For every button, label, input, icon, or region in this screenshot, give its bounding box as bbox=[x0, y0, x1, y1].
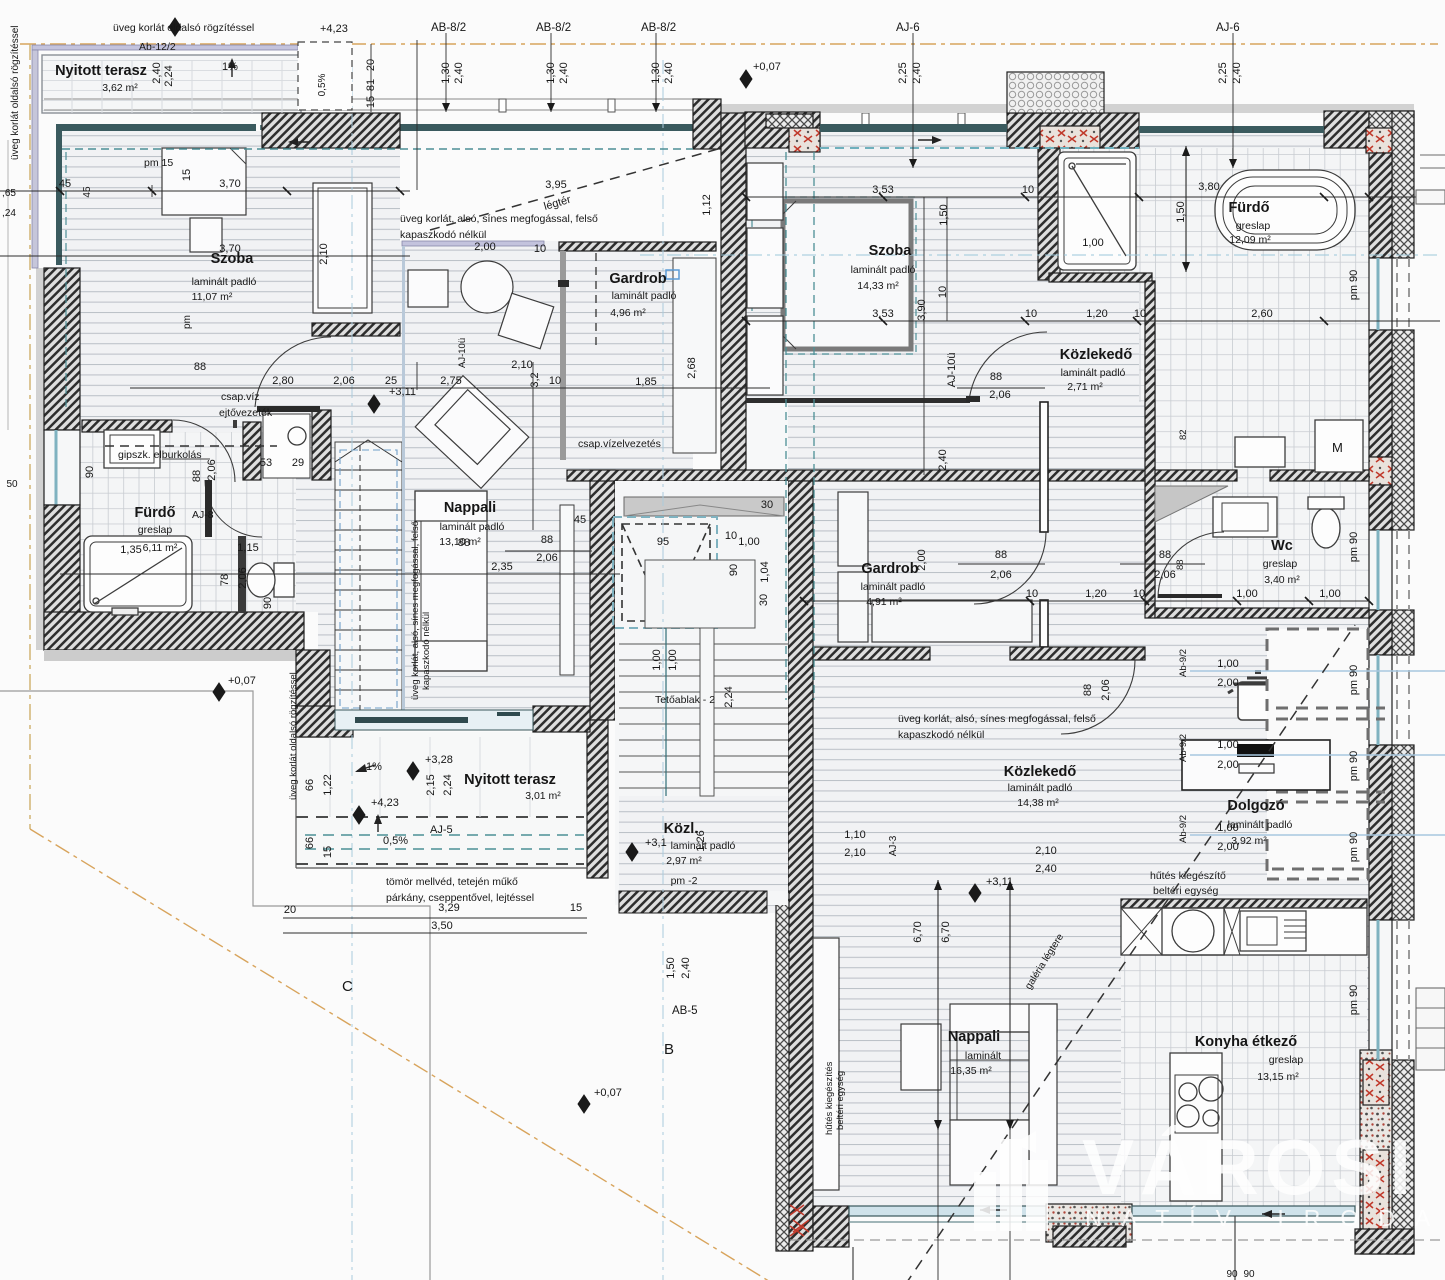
svg-text:AB-8/2: AB-8/2 bbox=[641, 22, 676, 34]
svg-text:2,24: 2,24 bbox=[723, 686, 735, 707]
svg-text:pm -2: pm -2 bbox=[671, 875, 698, 887]
svg-text:2,00: 2,00 bbox=[1217, 759, 1238, 771]
svg-text:Konyha étkező: Konyha étkező bbox=[1195, 1034, 1297, 1050]
svg-text:AJ-3: AJ-3 bbox=[888, 835, 899, 856]
svg-text:88: 88 bbox=[458, 537, 470, 549]
svg-text:Wc: Wc bbox=[1271, 538, 1293, 554]
svg-text:2,71 m²: 2,71 m² bbox=[1067, 381, 1103, 393]
svg-text:üveg korlát, alsó, sínes megfo: üveg korlát, alsó, sínes megfogással, fe… bbox=[898, 713, 1096, 725]
svg-text:Ab-9/2: Ab-9/2 bbox=[1178, 815, 1189, 843]
svg-text:2,24: 2,24 bbox=[442, 774, 454, 795]
svg-text:3,62 m²: 3,62 m² bbox=[102, 82, 138, 94]
svg-text:Közl.: Közl. bbox=[664, 821, 699, 837]
svg-text:pm 90: pm 90 bbox=[1348, 832, 1360, 863]
svg-text:Nappali: Nappali bbox=[948, 1029, 1000, 1045]
svg-text:2,00: 2,00 bbox=[916, 549, 928, 570]
svg-text:1,00: 1,00 bbox=[667, 649, 679, 670]
svg-text:2,06: 2,06 bbox=[990, 569, 1011, 581]
svg-text:tömör mellvéd, tetején műkő: tömör mellvéd, tetején műkő bbox=[386, 876, 518, 888]
svg-text:2,40: 2,40 bbox=[680, 957, 692, 978]
svg-text:kapaszkodó nélkül: kapaszkodó nélkül bbox=[898, 729, 984, 741]
svg-text:1%: 1% bbox=[366, 761, 382, 773]
svg-text:2,00: 2,00 bbox=[1217, 677, 1238, 689]
svg-text:78: 78 bbox=[219, 574, 231, 586]
svg-text:beltéri egység: beltéri egység bbox=[835, 1071, 846, 1130]
svg-text:10: 10 bbox=[725, 530, 737, 542]
svg-text:AJ-6: AJ-6 bbox=[896, 22, 920, 34]
svg-text:+3,1: +3,1 bbox=[645, 837, 667, 849]
svg-text:Dolgozó: Dolgozó bbox=[1227, 798, 1284, 814]
svg-text:2,24: 2,24 bbox=[163, 65, 175, 86]
svg-text:88: 88 bbox=[1175, 559, 1186, 570]
svg-text:3,29: 3,29 bbox=[438, 902, 459, 914]
svg-text:Közlekedő: Közlekedő bbox=[1004, 764, 1077, 780]
svg-text:AB-8/2: AB-8/2 bbox=[431, 22, 466, 34]
svg-text:45: 45 bbox=[59, 178, 71, 190]
svg-text:1,00: 1,00 bbox=[1217, 739, 1238, 751]
svg-text:AB-5: AB-5 bbox=[672, 1005, 698, 1017]
svg-text:ejtővezeték: ejtővezeték bbox=[219, 407, 273, 419]
svg-text:2,40: 2,40 bbox=[558, 62, 570, 83]
svg-text:30: 30 bbox=[761, 499, 773, 511]
svg-text:1,50: 1,50 bbox=[1175, 201, 1187, 222]
svg-text:88: 88 bbox=[541, 534, 553, 546]
svg-text:15: 15 bbox=[181, 169, 193, 181]
svg-text:laminált padló: laminált padló bbox=[1061, 367, 1126, 379]
svg-text:88: 88 bbox=[191, 470, 203, 482]
svg-text:1,00: 1,00 bbox=[738, 536, 759, 548]
svg-text:10: 10 bbox=[534, 243, 546, 255]
svg-text:20: 20 bbox=[284, 904, 296, 916]
svg-text:2,40: 2,40 bbox=[453, 62, 465, 83]
svg-text:1,00: 1,00 bbox=[1217, 822, 1238, 834]
svg-text:pm 90: pm 90 bbox=[1348, 270, 1360, 301]
svg-text:1,30: 1,30 bbox=[545, 62, 557, 83]
svg-text:1,50: 1,50 bbox=[665, 957, 677, 978]
svg-text:2,97 m²: 2,97 m² bbox=[666, 855, 702, 867]
svg-text:laminált padló: laminált padló bbox=[1008, 782, 1073, 794]
svg-text:1,85: 1,85 bbox=[635, 376, 656, 388]
svg-text:Közlekedő: Közlekedő bbox=[1060, 347, 1133, 363]
svg-text:2,06: 2,06 bbox=[1100, 679, 1112, 700]
svg-text:beltéri egység: beltéri egység bbox=[1153, 885, 1219, 897]
svg-text:2,06: 2,06 bbox=[536, 552, 557, 564]
svg-text:2,68: 2,68 bbox=[686, 357, 698, 378]
svg-text:90: 90 bbox=[1243, 1269, 1255, 1280]
svg-text:üveg korlát oldalsó rögzítésse: üveg korlát oldalsó rögzítéssel bbox=[288, 672, 299, 800]
svg-text:greslap: greslap bbox=[1269, 1054, 1304, 1066]
svg-text:hűtés kiegészítő: hűtés kiegészítő bbox=[1150, 870, 1226, 882]
svg-text:+0,07: +0,07 bbox=[753, 61, 781, 73]
svg-text:90: 90 bbox=[262, 597, 274, 609]
svg-text:6,70: 6,70 bbox=[912, 921, 924, 942]
svg-text:16,35 m²: 16,35 m² bbox=[950, 1065, 992, 1077]
svg-text:1,00: 1,00 bbox=[1082, 237, 1103, 249]
svg-text:AJ-10ü: AJ-10ü bbox=[457, 338, 468, 368]
svg-text:B: B bbox=[664, 1041, 674, 1058]
svg-text:hűtés kiegészítés: hűtés kiegészítés bbox=[824, 1061, 835, 1135]
svg-text:45: 45 bbox=[82, 186, 93, 198]
svg-text:3,40 m²: 3,40 m² bbox=[1264, 574, 1300, 586]
svg-text:10: 10 bbox=[1134, 308, 1146, 320]
svg-text:82: 82 bbox=[1178, 429, 1189, 440]
svg-text:laminált padló: laminált padló bbox=[851, 264, 916, 276]
svg-text:88: 88 bbox=[990, 371, 1002, 383]
svg-text:laminált padló: laminált padló bbox=[861, 581, 926, 593]
svg-text:3,50: 3,50 bbox=[431, 920, 452, 932]
svg-text:6,11 m²: 6,11 m² bbox=[143, 542, 178, 554]
svg-text:1%: 1% bbox=[222, 61, 238, 73]
svg-text:2,40: 2,40 bbox=[151, 62, 163, 83]
svg-text:15: 15 bbox=[322, 846, 334, 858]
svg-text:greslap: greslap bbox=[138, 524, 173, 536]
svg-text:laminált padló: laminált padló bbox=[612, 290, 677, 302]
svg-text:pm: pm bbox=[182, 315, 193, 329]
svg-text:45: 45 bbox=[574, 514, 586, 526]
svg-text:88: 88 bbox=[1082, 684, 1094, 696]
svg-text:kapaszkodó nélkül: kapaszkodó nélkül bbox=[421, 612, 432, 690]
svg-text:üveg korlát oldalsó rögzítésse: üveg korlát oldalsó rögzítéssel bbox=[113, 22, 254, 34]
svg-text:greslap: greslap bbox=[1236, 220, 1271, 232]
svg-text:AB-8/2: AB-8/2 bbox=[536, 22, 571, 34]
svg-text:Gardrob: Gardrob bbox=[609, 271, 666, 287]
svg-text:+3,28: +3,28 bbox=[425, 754, 453, 766]
svg-text:20: 20 bbox=[365, 59, 377, 71]
svg-text:AJ-10ü: AJ-10ü bbox=[946, 353, 958, 388]
svg-text:2,40: 2,40 bbox=[663, 62, 675, 83]
svg-text:2,35: 2,35 bbox=[491, 561, 512, 573]
svg-text:0,5%: 0,5% bbox=[383, 835, 408, 847]
svg-text:2,10: 2,10 bbox=[1035, 845, 1056, 857]
svg-text:+4,23: +4,23 bbox=[371, 797, 399, 809]
svg-text:3,2: 3,2 bbox=[529, 372, 541, 387]
svg-text:3,70: 3,70 bbox=[219, 178, 240, 190]
svg-text:2,06: 2,06 bbox=[206, 459, 218, 480]
svg-text:15: 15 bbox=[365, 96, 377, 108]
svg-text:29: 29 bbox=[292, 457, 304, 469]
svg-text:üveg korlát, alsó, sínes megfo: üveg korlát, alsó, sínes megfogással, fe… bbox=[400, 213, 598, 225]
svg-text:1,30: 1,30 bbox=[440, 62, 452, 83]
svg-text:csap.víz: csap.víz bbox=[221, 391, 260, 403]
svg-text:AJ-8: AJ-8 bbox=[192, 509, 214, 521]
svg-text:Nyitott terasz: Nyitott terasz bbox=[55, 63, 147, 79]
svg-text:Gardrob: Gardrob bbox=[861, 561, 918, 577]
svg-text:10: 10 bbox=[549, 375, 561, 387]
svg-text:66: 66 bbox=[304, 837, 316, 849]
svg-text:Nyitott terasz: Nyitott terasz bbox=[464, 772, 556, 788]
svg-text:NATÍV IRODA: NATÍV IRODA bbox=[1085, 1205, 1445, 1231]
svg-text:Ab-9/2: Ab-9/2 bbox=[1178, 649, 1189, 677]
svg-text:3,53: 3,53 bbox=[872, 308, 893, 320]
svg-text:2,00: 2,00 bbox=[474, 241, 495, 253]
svg-text:2,75: 2,75 bbox=[440, 375, 461, 387]
svg-text:3,53: 3,53 bbox=[872, 184, 893, 196]
svg-text:0,5%: 0,5% bbox=[317, 73, 328, 96]
svg-text:10: 10 bbox=[1133, 588, 1145, 600]
svg-text:+3,11: +3,11 bbox=[389, 386, 416, 398]
svg-text:12,09 m²: 12,09 m² bbox=[1229, 234, 1271, 246]
svg-text:1,00: 1,00 bbox=[1236, 588, 1257, 600]
svg-text:2,25: 2,25 bbox=[897, 62, 909, 83]
svg-text:90: 90 bbox=[728, 564, 740, 576]
svg-text:+4,23: +4,23 bbox=[320, 23, 348, 35]
svg-text:30: 30 bbox=[758, 594, 770, 606]
svg-text:1,00: 1,00 bbox=[651, 649, 663, 670]
svg-text:11,07 m²: 11,07 m² bbox=[192, 291, 233, 303]
svg-text:2,10: 2,10 bbox=[844, 847, 865, 859]
svg-text:1,20: 1,20 bbox=[1086, 308, 1107, 320]
svg-text:90: 90 bbox=[84, 466, 96, 478]
svg-text:AJ-5: AJ-5 bbox=[430, 824, 453, 836]
svg-text:10: 10 bbox=[1026, 588, 1038, 600]
svg-text:3,01 m²: 3,01 m² bbox=[525, 790, 561, 802]
svg-text:laminált padló: laminált padló bbox=[192, 276, 257, 288]
svg-text:pm 90: pm 90 bbox=[1348, 532, 1360, 563]
svg-text:2,40: 2,40 bbox=[1035, 863, 1056, 875]
svg-text:2,06: 2,06 bbox=[333, 375, 354, 387]
svg-text:2,10: 2,10 bbox=[318, 243, 330, 264]
svg-text:pm 90: pm 90 bbox=[1348, 985, 1360, 1016]
svg-text:csap.vízelvezetés: csap.vízelvezetés bbox=[578, 438, 661, 450]
svg-text:50: 50 bbox=[6, 479, 18, 490]
svg-text:Tetőablak - 2: Tetőablak - 2 bbox=[655, 694, 715, 706]
svg-text:88: 88 bbox=[1159, 549, 1171, 561]
svg-text:10: 10 bbox=[937, 286, 949, 298]
svg-text:2,40: 2,40 bbox=[937, 449, 949, 470]
svg-text:13,15 m²: 13,15 m² bbox=[1257, 1071, 1299, 1083]
svg-text:95: 95 bbox=[657, 536, 669, 548]
svg-text:1,00: 1,00 bbox=[1217, 658, 1238, 670]
svg-text:laminált: laminált bbox=[965, 1050, 1001, 1062]
svg-text:88: 88 bbox=[194, 361, 206, 373]
svg-text:66: 66 bbox=[304, 779, 316, 791]
svg-text:4,96 m²: 4,96 m² bbox=[610, 307, 646, 319]
svg-text:2,60: 2,60 bbox=[1251, 308, 1272, 320]
svg-text:1,20: 1,20 bbox=[1085, 588, 1106, 600]
svg-text:6,70: 6,70 bbox=[940, 921, 952, 942]
svg-text:1,00: 1,00 bbox=[1319, 588, 1340, 600]
svg-text:1,35: 1,35 bbox=[120, 544, 141, 556]
svg-text:25: 25 bbox=[385, 375, 397, 387]
svg-text:2,40: 2,40 bbox=[1231, 62, 1243, 83]
svg-text:üveg korlát oldalsó rögzítésse: üveg korlát oldalsó rögzítéssel bbox=[10, 25, 21, 160]
svg-text:kapaszkodó nélkül: kapaszkodó nélkül bbox=[400, 229, 486, 241]
svg-text:10: 10 bbox=[1022, 184, 1034, 196]
svg-text:90: 90 bbox=[1226, 1269, 1238, 1280]
svg-text:Szoba: Szoba bbox=[869, 243, 913, 259]
svg-text:3,90: 3,90 bbox=[916, 299, 928, 320]
svg-text:Nappali: Nappali bbox=[444, 500, 496, 516]
svg-text:2,15: 2,15 bbox=[425, 774, 437, 795]
svg-text:Ab-9/2: Ab-9/2 bbox=[1178, 734, 1189, 762]
svg-text:2,10: 2,10 bbox=[511, 359, 532, 371]
svg-text:53: 53 bbox=[260, 457, 272, 469]
svg-text:3,70: 3,70 bbox=[219, 243, 240, 255]
svg-text:81: 81 bbox=[365, 79, 377, 91]
svg-text:14,33 m²: 14,33 m² bbox=[857, 280, 899, 292]
svg-text:2,00: 2,00 bbox=[1217, 841, 1238, 853]
svg-text:10: 10 bbox=[1025, 308, 1037, 320]
svg-text:1,30: 1,30 bbox=[650, 62, 662, 83]
svg-text:2,80: 2,80 bbox=[272, 375, 293, 387]
svg-text:greslap: greslap bbox=[1263, 558, 1298, 570]
svg-text:3,95: 3,95 bbox=[545, 179, 566, 191]
svg-text:2,06: 2,06 bbox=[989, 389, 1010, 401]
svg-text:1,12: 1,12 bbox=[701, 194, 713, 215]
svg-text:párkány, cseppentővel, lejtéss: párkány, cseppentővel, lejtéssel bbox=[386, 892, 534, 904]
svg-text:+0,07: +0,07 bbox=[594, 1087, 622, 1099]
svg-text:14,38 m²: 14,38 m² bbox=[1017, 797, 1059, 809]
svg-text:Ab-12/2: Ab-12/2 bbox=[139, 41, 176, 53]
svg-text:+3,11: +3,11 bbox=[986, 876, 1013, 888]
svg-text:laminált padló: laminált padló bbox=[440, 521, 505, 533]
svg-text:üveg korlát, alsó, sínes megfo: üveg korlát, alsó, sínes megfogással, fe… bbox=[410, 521, 421, 700]
svg-text:2,40: 2,40 bbox=[911, 62, 923, 83]
svg-text:Fürdő: Fürdő bbox=[1228, 200, 1269, 216]
svg-text:pm 90: pm 90 bbox=[1348, 665, 1360, 696]
svg-text:1,10: 1,10 bbox=[844, 829, 865, 841]
svg-text:2,25: 2,25 bbox=[1217, 62, 1229, 83]
svg-text:3,80: 3,80 bbox=[1198, 181, 1219, 193]
svg-text:2,06: 2,06 bbox=[1154, 569, 1175, 581]
svg-text:C: C bbox=[342, 978, 353, 995]
svg-text:1,50: 1,50 bbox=[938, 204, 950, 225]
svg-text:1,26: 1,26 bbox=[695, 830, 707, 851]
svg-text:2,06: 2,06 bbox=[237, 567, 249, 588]
svg-text:,65: ,65 bbox=[2, 188, 16, 199]
svg-text:VÁROSI: VÁROSI bbox=[1082, 1123, 1417, 1211]
svg-text:1,04: 1,04 bbox=[759, 561, 771, 582]
svg-text:1,15: 1,15 bbox=[237, 542, 258, 554]
svg-text:1,22: 1,22 bbox=[322, 774, 334, 795]
svg-text:15: 15 bbox=[570, 902, 582, 914]
svg-text:pm 90: pm 90 bbox=[1348, 751, 1360, 782]
svg-text:AJ-6: AJ-6 bbox=[1216, 22, 1240, 34]
svg-text:+0,07: +0,07 bbox=[228, 675, 256, 687]
svg-text:,24: ,24 bbox=[2, 208, 16, 219]
svg-text:gipszk. elburkolás: gipszk. elburkolás bbox=[118, 449, 201, 461]
svg-text:pm 15: pm 15 bbox=[144, 157, 173, 169]
svg-text:Fürdő: Fürdő bbox=[134, 505, 175, 521]
svg-text:88: 88 bbox=[995, 549, 1007, 561]
svg-text:4,91 m²: 4,91 m² bbox=[866, 596, 902, 608]
svg-text:M: M bbox=[1332, 440, 1343, 455]
